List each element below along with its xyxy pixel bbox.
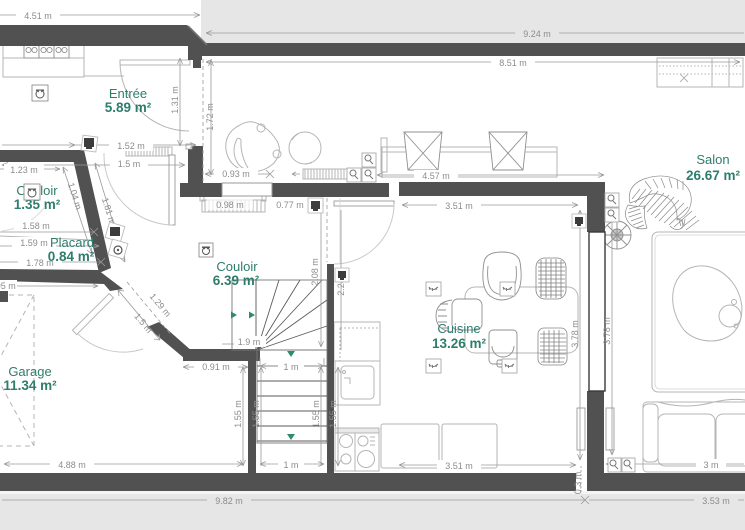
svg-text:0.93 m: 0.93 m [222, 169, 250, 179]
svg-text:0.84 m²: 0.84 m² [48, 249, 95, 264]
svg-text:1 m: 1 m [283, 460, 298, 470]
svg-text:11.34 m²: 11.34 m² [3, 378, 57, 393]
svg-text:1.58 m: 1.58 m [22, 221, 50, 231]
svg-text:3 m: 3 m [703, 460, 718, 470]
svg-text:3.51 m: 3.51 m [445, 461, 473, 471]
svg-text:1.23 m: 1.23 m [10, 165, 38, 175]
svg-text:Cuisine: Cuisine [437, 321, 480, 336]
svg-text:1.55 m: 1.55 m [251, 400, 261, 428]
svg-text:1.52 m: 1.52 m [117, 141, 145, 151]
svg-text:9.82 m: 9.82 m [215, 496, 243, 506]
svg-text:Placard: Placard [50, 235, 94, 250]
svg-text:Entrée: Entrée [109, 86, 147, 101]
svg-text:1.55 m: 1.55 m [328, 400, 338, 428]
svg-text:1.72 m: 1.72 m [205, 103, 215, 131]
svg-text:3.78 m: 3.78 m [570, 320, 580, 348]
svg-text:0.3 m: 0.3 m [573, 472, 583, 495]
svg-text:1 m: 1 m [283, 362, 298, 372]
svg-text:1.5 m: 1.5 m [118, 159, 141, 169]
svg-text:8.51 m: 8.51 m [499, 58, 527, 68]
svg-text:4.51 m: 4.51 m [24, 11, 52, 21]
svg-text:1.59 m: 1.59 m [20, 238, 48, 248]
svg-text:Garage: Garage [8, 364, 51, 379]
svg-text:Couloir: Couloir [216, 259, 258, 274]
svg-text:4.88 m: 4.88 m [58, 460, 86, 470]
svg-text:3.51 m: 3.51 m [445, 201, 473, 211]
svg-text:5.89 m²: 5.89 m² [105, 100, 152, 115]
svg-text:2.08 m: 2.08 m [310, 258, 320, 286]
svg-text:0.91 m: 0.91 m [202, 362, 230, 372]
svg-text:0.95 m: 0.95 m [0, 281, 16, 291]
svg-text:0.77 m: 0.77 m [276, 200, 304, 210]
svg-text:1.31 m: 1.31 m [170, 86, 180, 114]
svg-text:1.55 m: 1.55 m [311, 400, 321, 428]
svg-text:0.98 m: 0.98 m [216, 200, 244, 210]
svg-text:Salon: Salon [696, 152, 729, 167]
svg-text:3.53 m: 3.53 m [702, 496, 730, 506]
svg-text:9.24 m: 9.24 m [523, 29, 551, 39]
svg-text:6.39 m²: 6.39 m² [213, 273, 260, 288]
svg-text:1.9 m: 1.9 m [238, 337, 261, 347]
svg-text:3.78 m: 3.78 m [602, 317, 612, 345]
svg-text:1.55 m: 1.55 m [233, 400, 243, 428]
svg-text:4.57 m: 4.57 m [422, 171, 450, 181]
svg-text:26.67 m²: 26.67 m² [686, 168, 741, 183]
svg-text:13.26 m²: 13.26 m² [432, 336, 487, 351]
